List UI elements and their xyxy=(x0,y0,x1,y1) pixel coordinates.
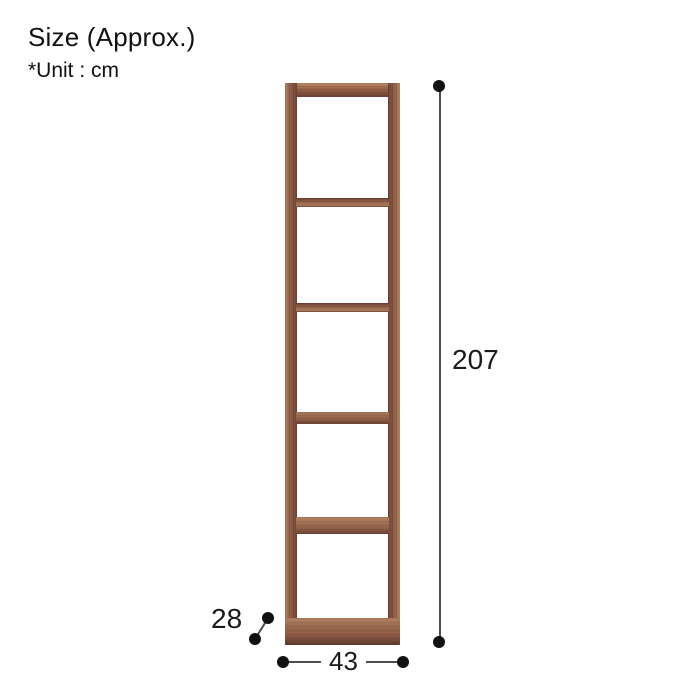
dimension-endpoint-dot xyxy=(249,633,261,645)
shelf-board xyxy=(296,198,389,207)
height-dimension-line xyxy=(439,86,441,642)
unit-note: *Unit : cm xyxy=(28,59,119,83)
shelf-illustration xyxy=(285,83,400,645)
dimension-endpoint-dot xyxy=(433,636,445,648)
depth-dimension-label: 28 xyxy=(211,605,242,633)
shelf-board xyxy=(296,303,389,312)
shelf-top-beam xyxy=(285,83,400,97)
width-dimension-value: 43 xyxy=(321,648,366,675)
shelf-bottom-beam xyxy=(285,618,400,645)
shelf-left-post xyxy=(285,83,297,645)
product-size-diagram: Size (Approx.) *Unit : cm 207 43 28 xyxy=(0,0,700,700)
width-dimension-label: 43 xyxy=(283,648,404,675)
dimension-endpoint-dot xyxy=(433,80,445,92)
dimension-endpoint-dot xyxy=(262,612,274,624)
shelf-right-post xyxy=(388,83,400,645)
shelf-board xyxy=(296,412,389,424)
height-dimension-label: 207 xyxy=(452,346,499,374)
size-title: Size (Approx.) xyxy=(28,22,196,53)
shelf-board xyxy=(296,517,389,534)
